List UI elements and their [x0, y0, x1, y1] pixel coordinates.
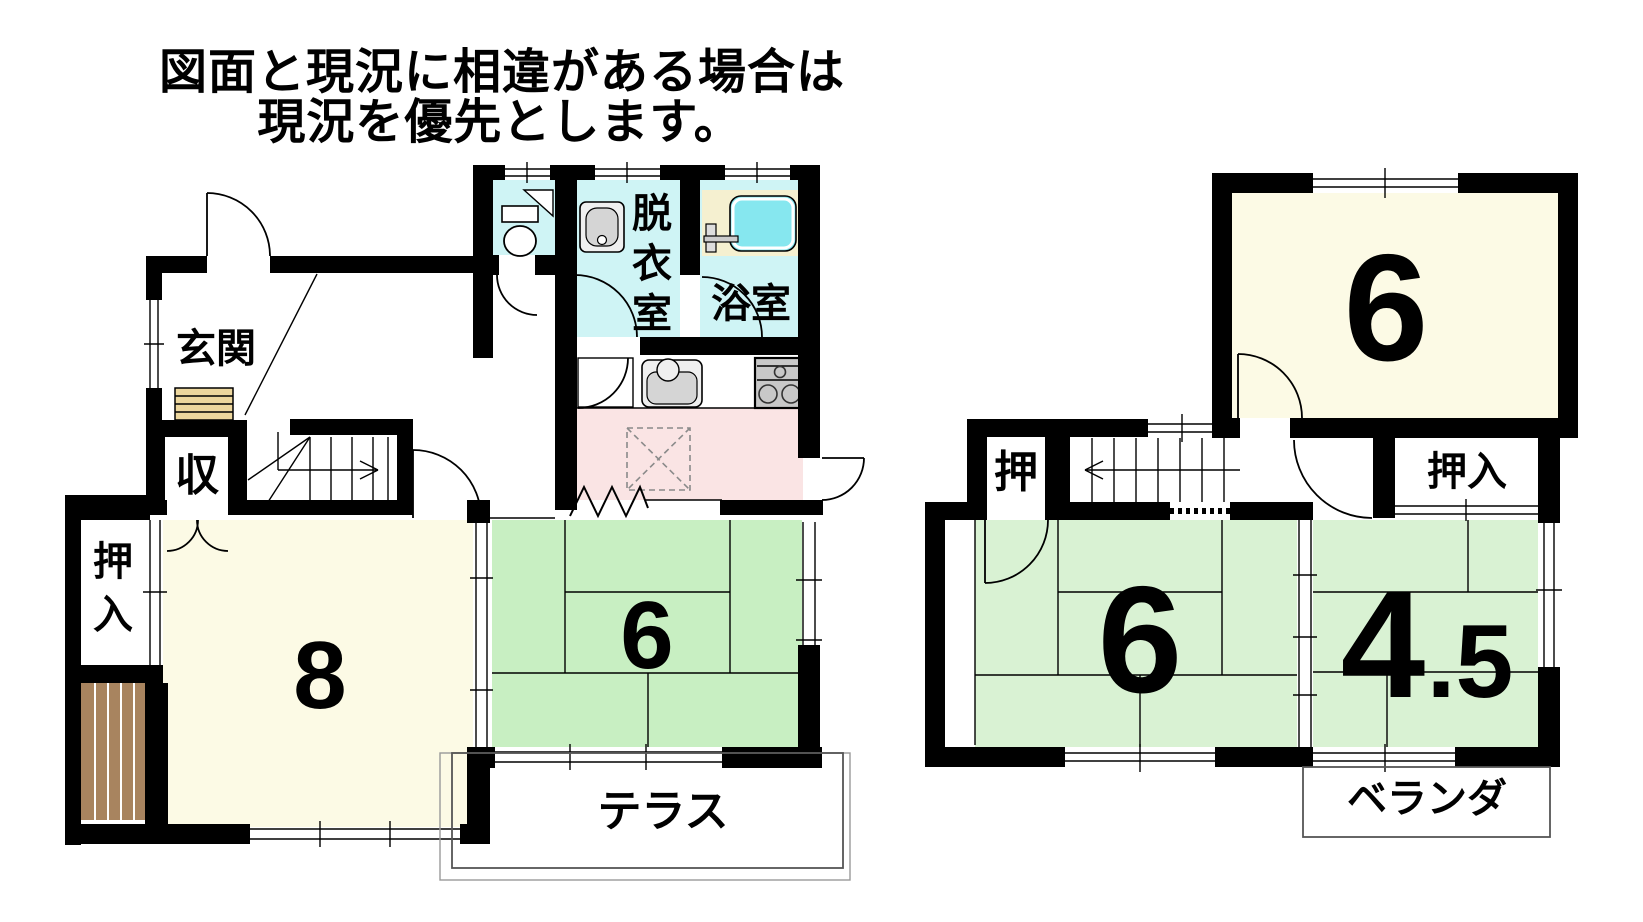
floorplan-page: 図面と現況に相違がある場合は 現況を優先とします。	[0, 0, 1643, 922]
sliding-door-partition	[470, 520, 493, 758]
disclaimer-line1: 図面と現況に相違がある場合は	[159, 46, 845, 99]
veranda: ベランダ	[1303, 767, 1550, 837]
disclaimer-line2: 現況を優先とします。	[257, 96, 742, 149]
terrace-label: テラス	[597, 787, 728, 836]
svg-text:押: 押	[93, 540, 133, 584]
stairs-2f	[1085, 438, 1240, 502]
bath-label: 浴室	[711, 282, 791, 326]
floor1-plan: テラス 玄関 収 押 入 脱 衣 室 浴室 8 6	[65, 162, 864, 880]
disclaimer-header: 図面と現況に相違がある場合は 現況を優先とします。	[159, 46, 845, 149]
room45-size: 4	[1341, 560, 1426, 730]
room6-size-1f: 6	[620, 582, 673, 689]
window	[1536, 523, 1562, 667]
terrace: テラス	[440, 753, 850, 880]
room6-size-2f: 6	[1098, 555, 1183, 725]
svg-text:室: 室	[632, 292, 672, 336]
entrance-step	[175, 388, 233, 420]
window	[144, 300, 164, 388]
stove-icon	[755, 358, 803, 408]
svg-text:脱: 脱	[632, 192, 672, 236]
svg-text:衣: 衣	[632, 242, 672, 286]
entrance-door	[207, 193, 270, 256]
toilet-door	[497, 275, 537, 315]
window	[1148, 414, 1212, 442]
bathtub-icon	[702, 190, 798, 256]
room6-upper-size: 6	[1344, 223, 1429, 393]
dressing-label: 脱 衣 室	[632, 192, 672, 336]
window	[595, 162, 660, 183]
floorplan-drawing: 図面と現況に相違がある場合は 現況を優先とします。	[0, 0, 1643, 922]
washbasin-icon	[580, 202, 624, 252]
veranda-label: ベランダ	[1347, 777, 1507, 821]
floor2-plan: ベランダ 押 押入 6 6 4 .5	[925, 168, 1578, 837]
window	[1065, 744, 1215, 772]
room8-size: 8	[293, 622, 346, 729]
closet-label-2f: 押入	[1427, 450, 1507, 494]
terrace-opening	[495, 744, 722, 770]
wood-floor-strip	[81, 683, 145, 820]
stairs-1f	[248, 432, 388, 502]
sliding-door-closet-2f	[1395, 499, 1538, 521]
kitchen-sink-icon	[642, 359, 702, 407]
room45-decimal: .5	[1427, 604, 1514, 720]
kitchen-counter	[577, 358, 803, 408]
entrance-label: 玄関	[176, 327, 256, 371]
kitchen-back-door	[822, 458, 864, 500]
window	[505, 162, 550, 183]
storage-label: 収	[175, 451, 219, 500]
closet-label-1f: 押 入	[93, 540, 133, 637]
svg-text:入: 入	[93, 593, 133, 637]
window	[725, 162, 790, 183]
closet-small-label-2f: 押	[994, 448, 1038, 497]
